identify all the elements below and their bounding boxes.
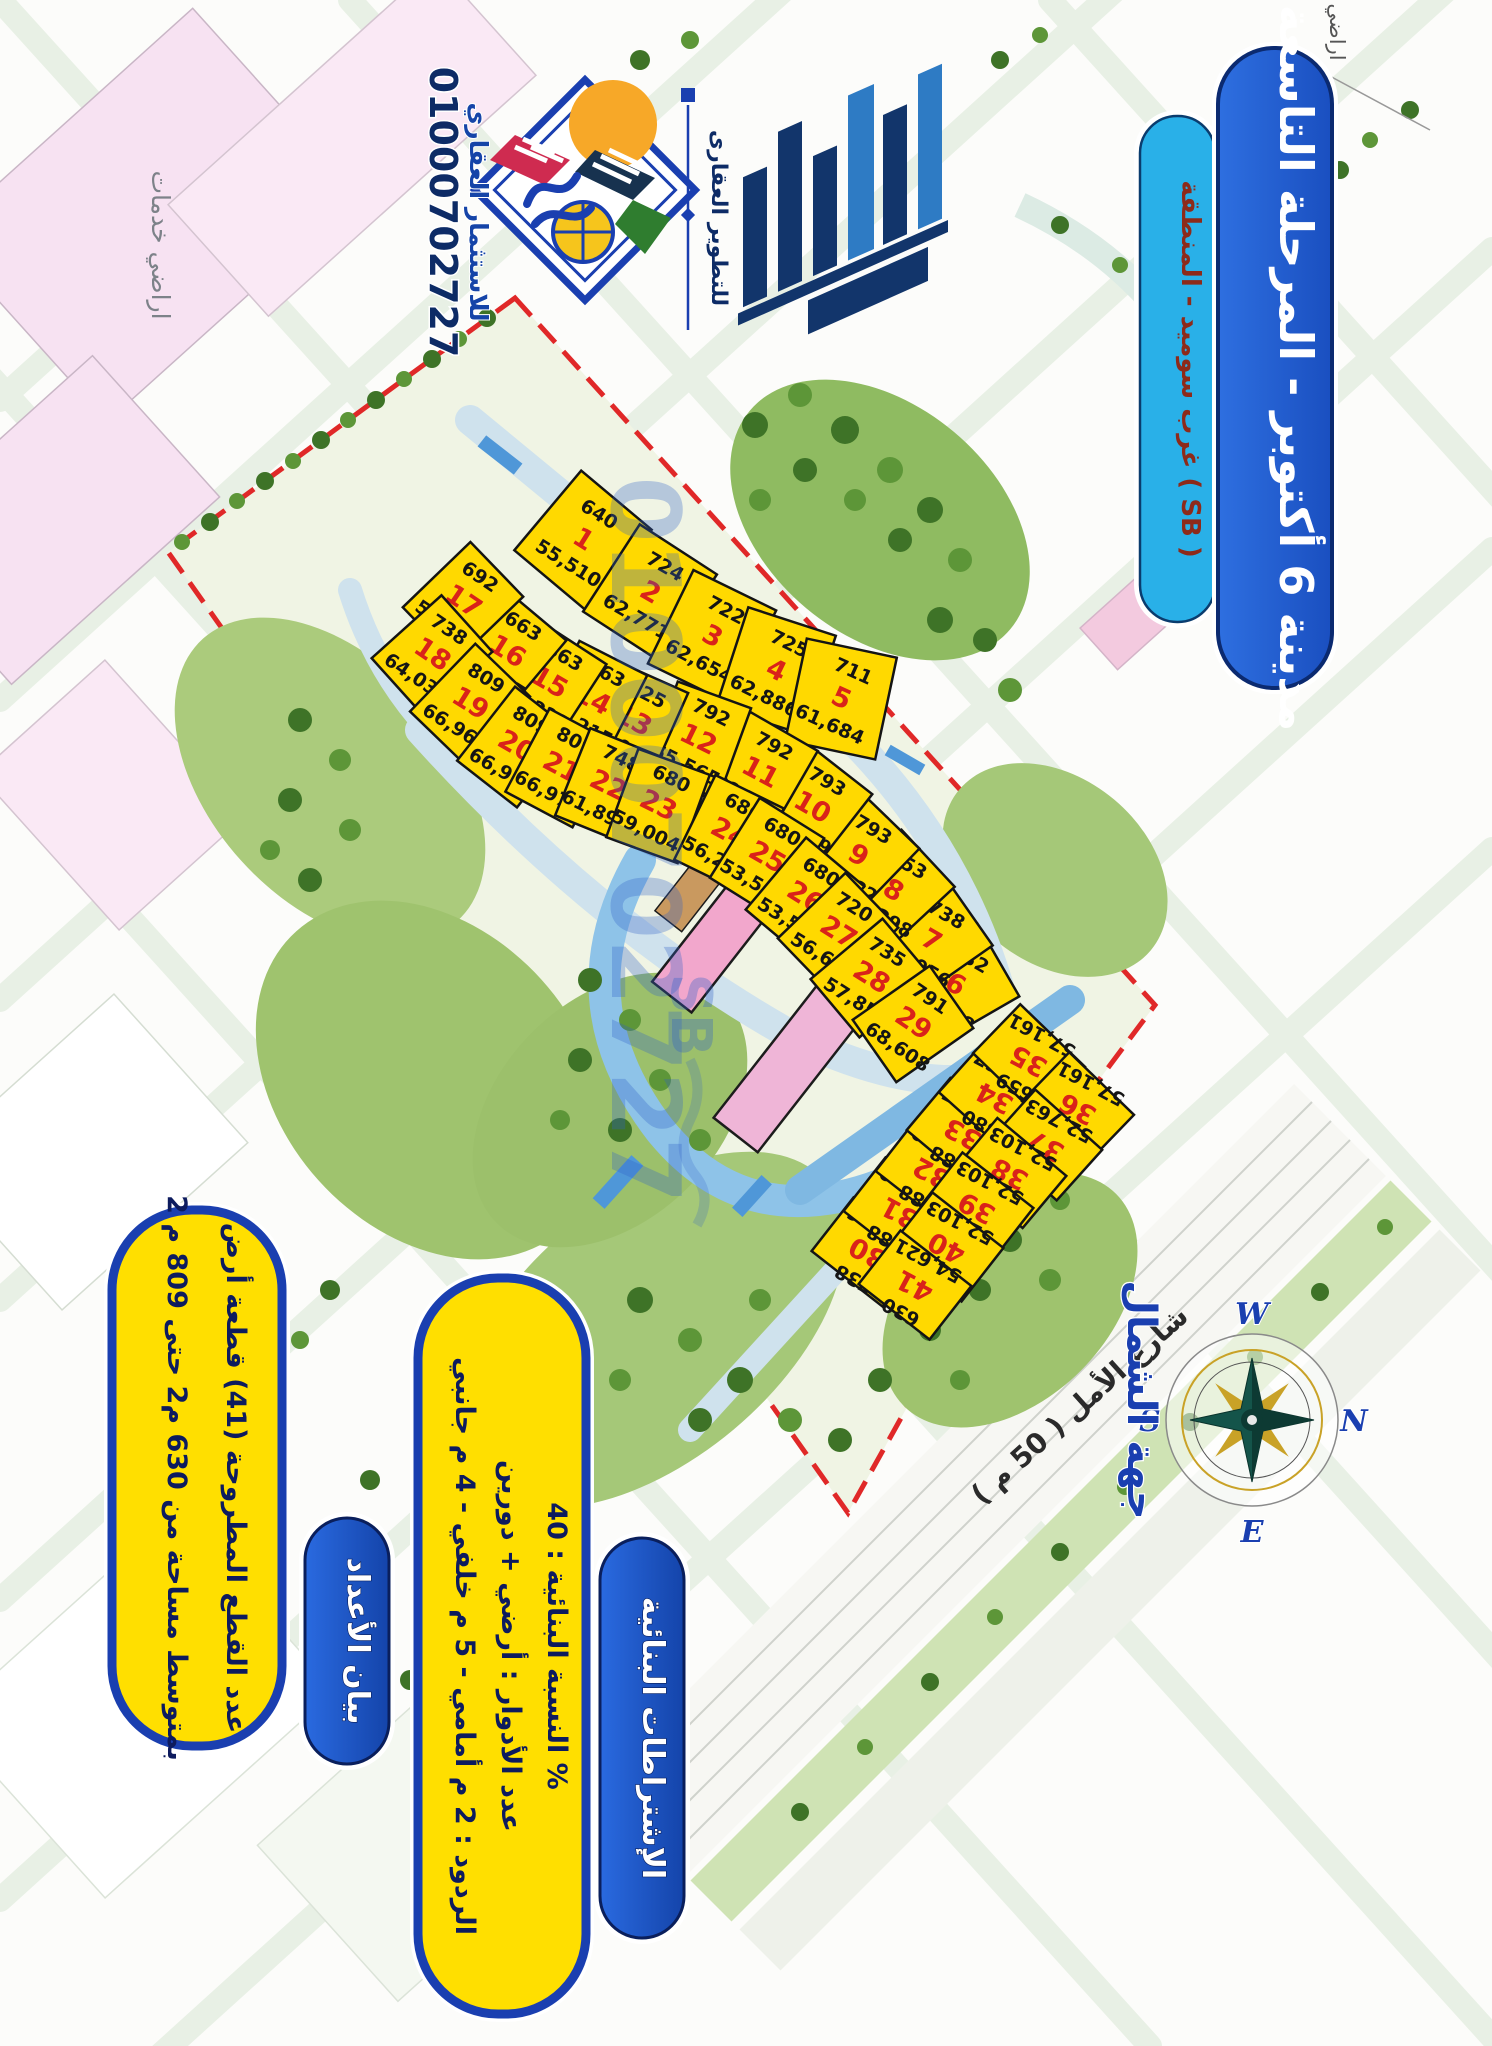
phone-number: 01000702727	[421, 67, 465, 358]
brand-divider	[681, 88, 695, 330]
regulations-box: النسبة البنائية : 40 % عدد الأدوار : أرض…	[410, 1270, 594, 2022]
watermark-code: SB	[658, 973, 723, 1056]
services-land-label: اراضي خدمات	[146, 170, 175, 319]
title-banner: مدينة 6 أكتوبر - المرحلة التاسعة	[1212, 5, 1338, 732]
watermark-phone: 01000702727	[589, 476, 699, 1203]
sun-icon	[569, 80, 657, 168]
counts-line-2: بمتوسط مساحة من 630 م2 حتى 809 م 2	[161, 1195, 192, 1761]
regulations-title-text: الإشتراطات البنائية	[635, 1597, 670, 1879]
brochure-page: 640155,510724262,771722362,654725462,886…	[0, 0, 1492, 2046]
north-label: جهة الشمال	[1118, 1280, 1164, 1519]
compass-letter-bottom: E	[1240, 1515, 1265, 1550]
counts-box: عدد القطع المطروحة (41) قطعة أرض بمتوسط …	[104, 1195, 290, 1761]
counts-line-1: عدد القطع المطروحة (41) قطعة أرض	[220, 1223, 254, 1734]
site-plan-map: 640155,510724262,771722362,654725462,886…	[0, 0, 1492, 2046]
corner-note: اراضي	[1325, 3, 1349, 60]
compass-letter-right: N	[1339, 1404, 1369, 1439]
regulations-line-1: النسبة البنائية : 40 %	[541, 1502, 572, 1789]
compass-letter-top: W	[1235, 1297, 1272, 1332]
counts-title-text: بيان الأعداد	[340, 1558, 377, 1725]
title-banner-text: مدينة 6 أكتوبر - المرحلة التاسعة	[1269, 5, 1326, 732]
zone-banner: غرب سوميد - المنطقة ( SB )	[1134, 110, 1221, 628]
regulations-title-pill: الإشتراطات البنائية	[594, 1532, 690, 1944]
regulations-line-3: الردود : 2 م أمامي - 5 م خلفي - 4 م جانب…	[449, 1357, 483, 1935]
investor-label: للاستثمار العقاري	[463, 102, 493, 321]
counts-title-pill: بيان الأعداد	[299, 1512, 395, 1770]
regulations-line-2: عدد الأدوار : أرضي + دورين	[495, 1460, 529, 1832]
developer-label: للتطوير العقارى	[706, 130, 731, 306]
zone-banner-text: غرب سوميد - المنطقة ( SB )	[1175, 180, 1205, 558]
